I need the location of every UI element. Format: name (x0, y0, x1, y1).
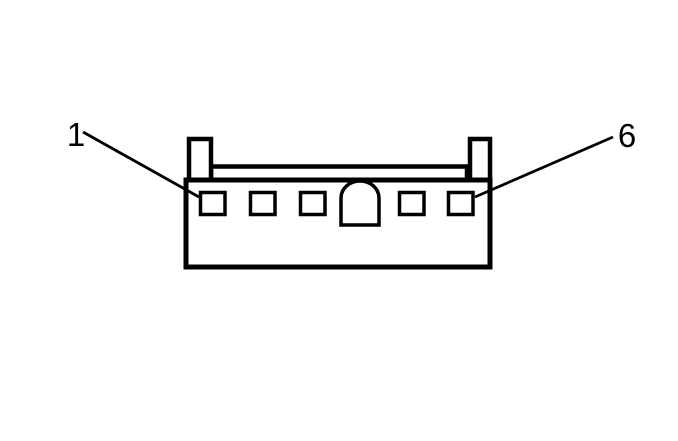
callout-1-leader-line (83, 132, 199, 197)
mounting-tab-left (189, 139, 211, 182)
callout-6-leader-line (475, 137, 613, 197)
cavity-2 (251, 193, 276, 215)
callout-1-label: 1 (67, 116, 85, 153)
connector-face-view-drawing: 1 6 (0, 0, 678, 441)
cavity-4-keyway (341, 181, 379, 225)
cavity-3 (301, 193, 326, 215)
cavity-5 (400, 193, 425, 215)
connector-body (186, 180, 490, 267)
cavity-6 (449, 193, 474, 215)
connector-diagram: 1 6 (0, 0, 678, 441)
callout-6-label: 6 (618, 117, 636, 154)
mounting-tab-right (470, 139, 490, 182)
cavity-1 (201, 193, 226, 215)
